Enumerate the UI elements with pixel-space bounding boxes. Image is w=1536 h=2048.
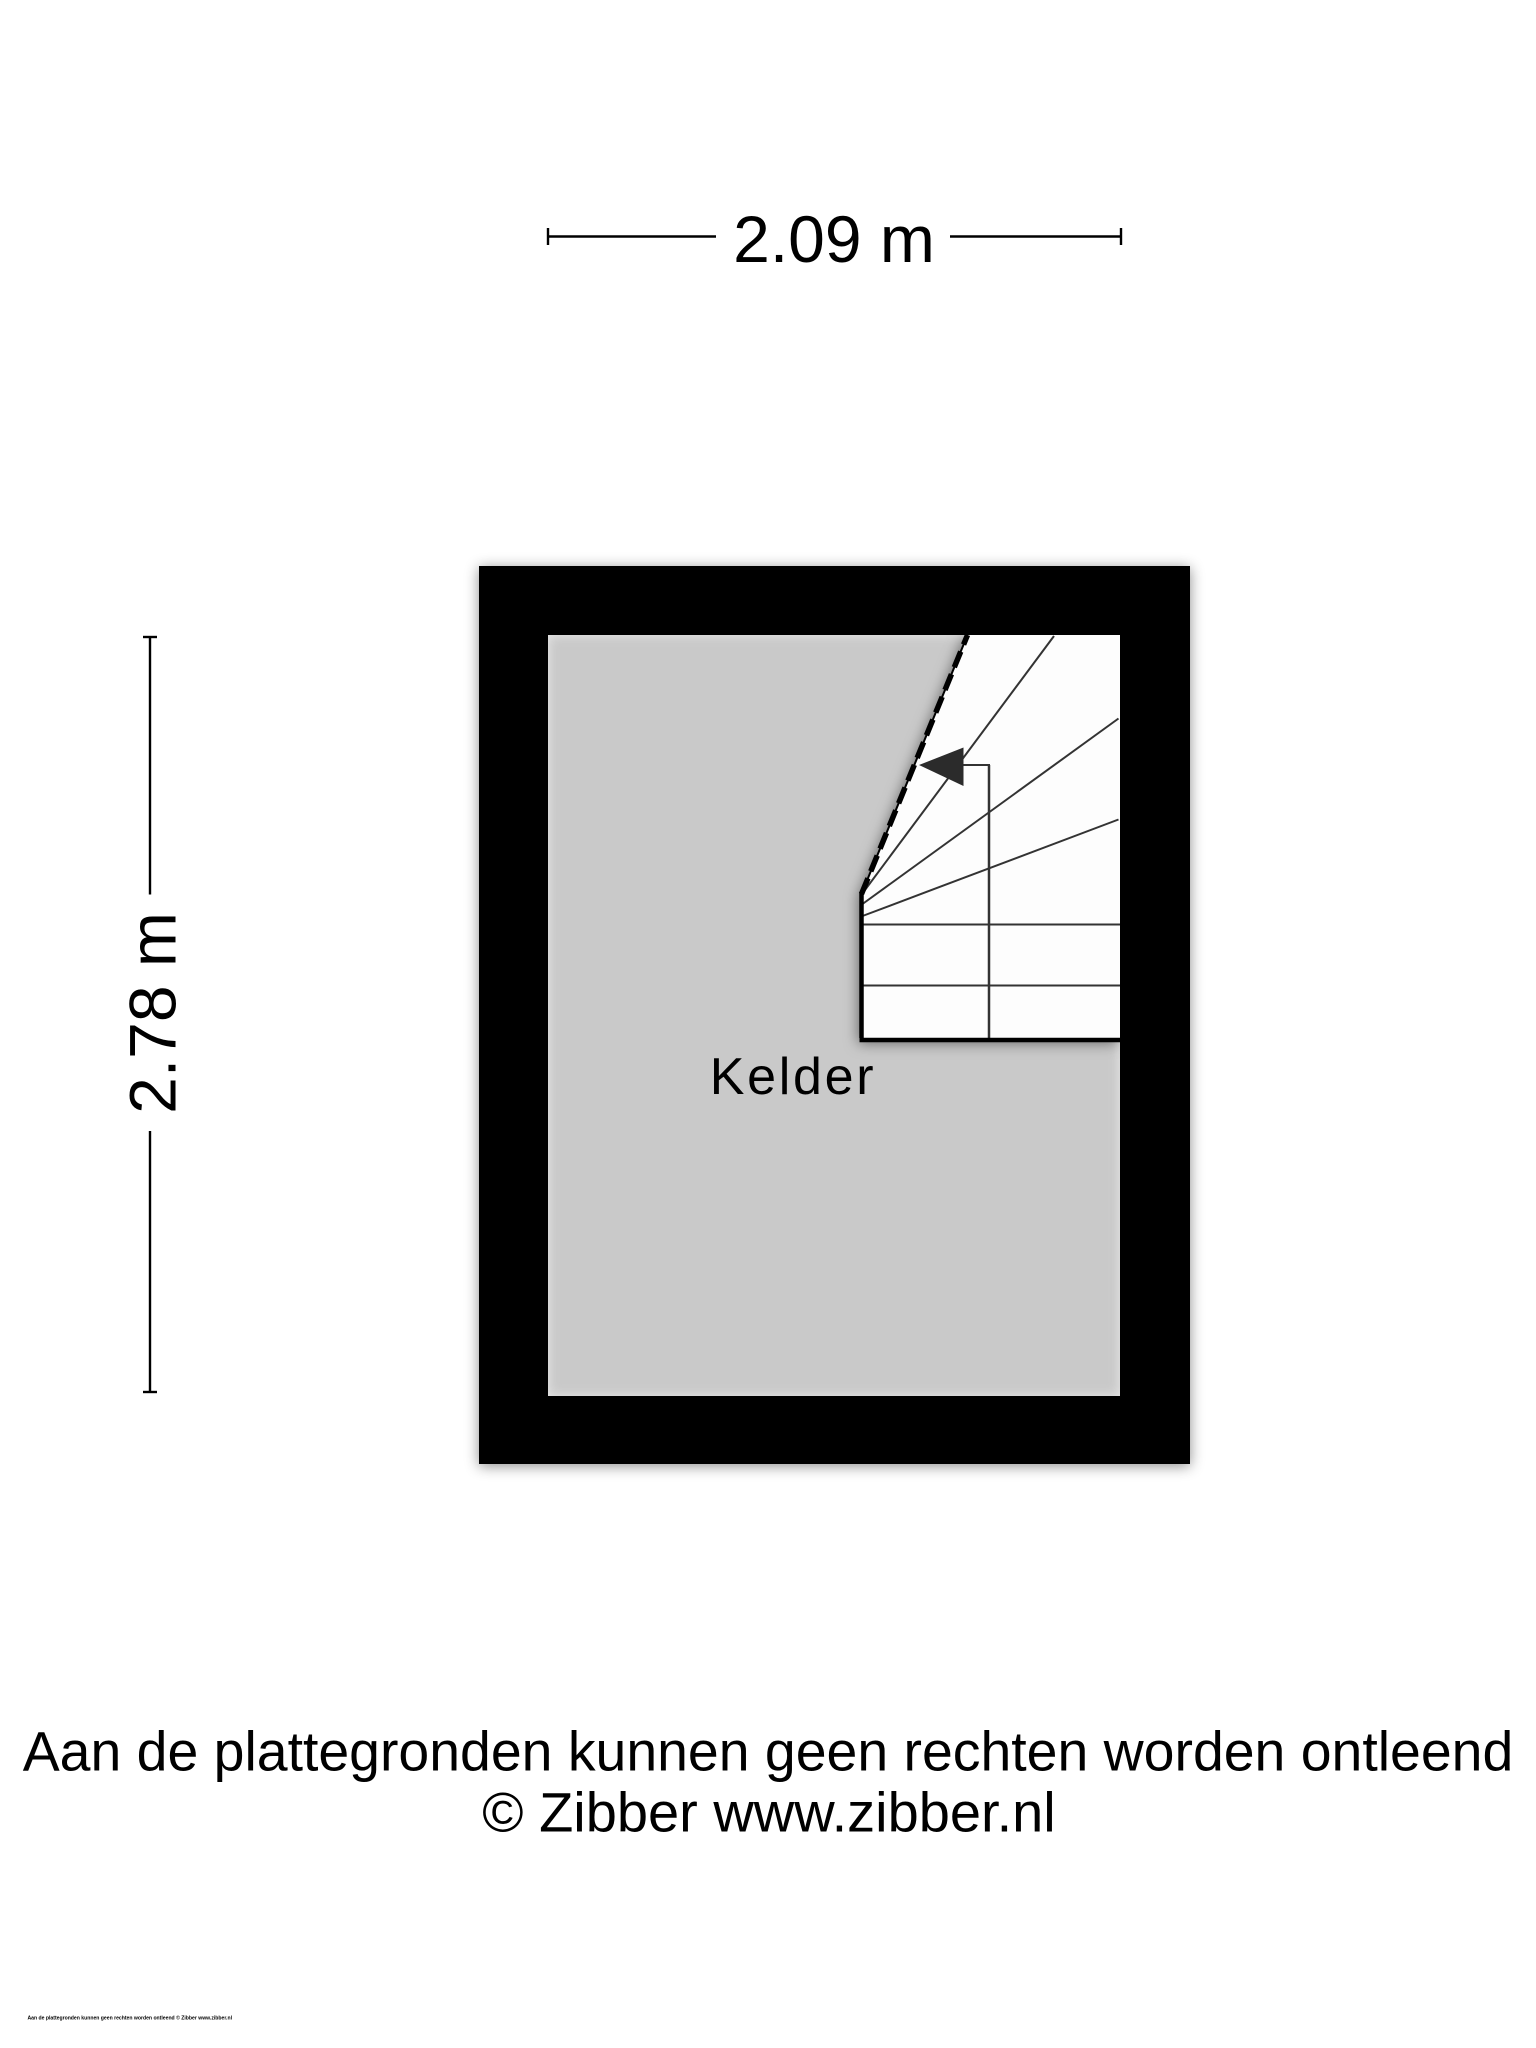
svg-text:Aan de plattegronden kunnen ge: Aan de plattegronden kunnen geen rechten…: [23, 1721, 1514, 1783]
svg-text:2.78 m: 2.78 m: [116, 912, 190, 1114]
svg-text:Aan de plattegronden kunnen ge: Aan de plattegronden kunnen geen rechten…: [28, 2015, 233, 2022]
svg-text:Kelder: Kelder: [710, 1048, 877, 1106]
svg-text:© Zibber www.zibber.nl: © Zibber www.zibber.nl: [482, 1781, 1055, 1844]
svg-text:2.09 m: 2.09 m: [733, 202, 935, 276]
